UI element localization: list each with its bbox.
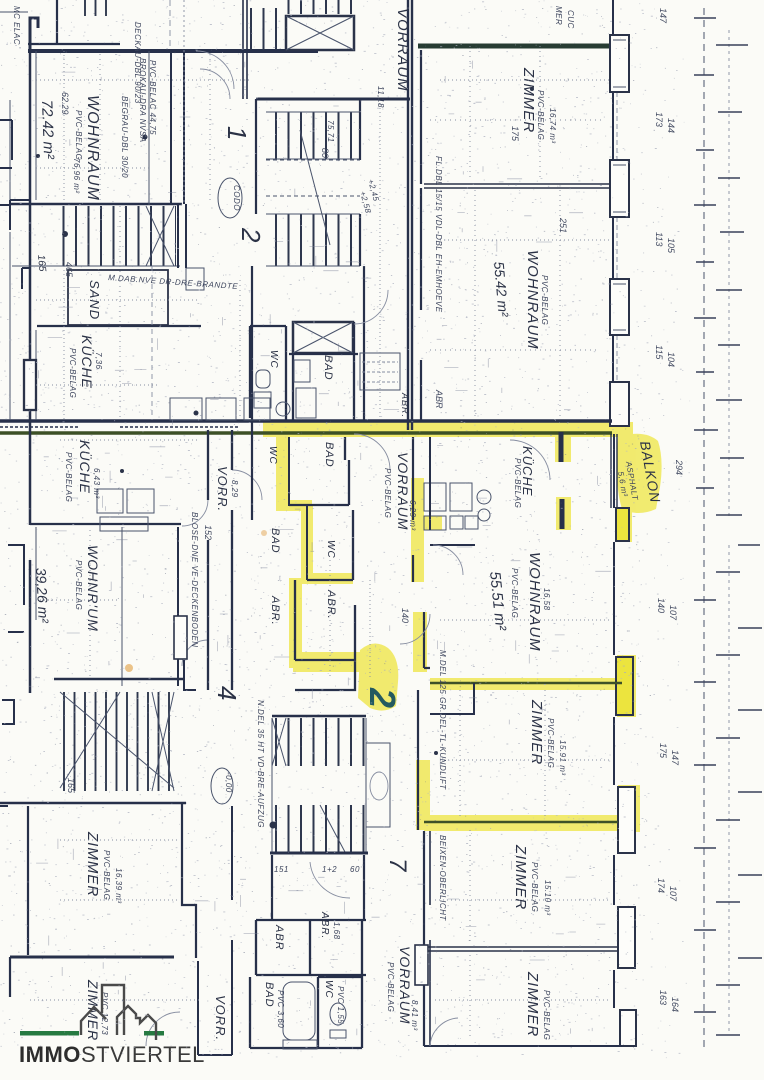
svg-text:140: 140	[400, 608, 410, 623]
svg-text:DECKAU-DBL 90/23: DECKAU-DBL 90/23	[133, 22, 142, 104]
svg-text:BAD: BAD	[323, 442, 335, 468]
svg-text:147: 147	[658, 8, 668, 24]
svg-text:PVC-BELAG: PVC-BELAG	[542, 990, 551, 1040]
svg-text:147: 147	[670, 750, 680, 766]
svg-text:MC ELAC: MC ELAC	[12, 6, 21, 45]
svg-text:465: 465	[64, 262, 74, 278]
svg-text:6,29 m³: 6,29 m³	[408, 500, 417, 531]
svg-text:IMMO: IMMO	[19, 1042, 81, 1067]
svg-text:M.DEL 125 GR.DEL-TL-KUNDLIFT: M.DEL 125 GR.DEL-TL-KUNDLIFT	[438, 650, 447, 790]
svg-text:151: 151	[274, 865, 289, 874]
svg-text:VORR.: VORR.	[213, 995, 228, 1041]
svg-text:SAND: SAND	[87, 280, 102, 320]
svg-text:165: 165	[66, 778, 76, 794]
svg-text:ABR.: ABR.	[269, 595, 281, 626]
svg-text:ZIMMER: ZIMMER	[524, 971, 541, 1037]
svg-text:WOHNRAUM: WOHNRAUM	[524, 250, 541, 350]
svg-text:175: 175	[658, 743, 668, 759]
svg-text:16,39 m³: 16,39 m³	[114, 868, 123, 904]
svg-text:62.29: 62.29	[60, 92, 70, 115]
svg-text:107: 107	[668, 605, 678, 621]
svg-text:BAD: BAD	[263, 982, 275, 1008]
svg-text:175: 175	[510, 126, 520, 142]
svg-text:PVC-BELAG: PVC-BELAG	[510, 568, 519, 618]
svg-text:PVC-BELAG: PVC-BELAG	[513, 458, 522, 508]
svg-text:ABR.: ABR.	[325, 589, 337, 620]
svg-text:8,29: 8,29	[230, 480, 239, 498]
svg-text:72.42 m²: 72.42 m²	[38, 100, 57, 161]
svg-text:WC: WC	[323, 980, 334, 999]
svg-text:ABR: ABR	[273, 924, 285, 951]
svg-text:2: 2	[362, 687, 403, 708]
svg-text:60: 60	[350, 865, 360, 874]
svg-text:CODO: CODO	[232, 185, 241, 211]
svg-text:FL.DBL 15/15 VDL-DBL EH-EMHOEV: FL.DBL 15/15 VDL-DBL EH-EMHOEVE	[434, 156, 443, 313]
svg-text:PVC-BELAG: PVC-BELAG	[74, 560, 83, 610]
svg-text:165: 165	[35, 254, 47, 272]
svg-text:152: 152	[203, 525, 213, 540]
svg-text:PVC-BELAG: PVC-BELAG	[536, 90, 545, 140]
svg-text:WC: WC	[267, 446, 278, 465]
svg-text:144: 144	[666, 118, 676, 133]
svg-text:2: 2	[236, 227, 266, 243]
svg-text:11,18: 11,18	[376, 86, 385, 108]
svg-text:BAD: BAD	[269, 528, 281, 554]
svg-text:-0,00: -0,00	[224, 772, 233, 793]
svg-text:ZIMMER: ZIMMER	[512, 844, 529, 910]
svg-text:PVC-BELAG: PVC-BELAG	[383, 468, 392, 518]
svg-text:MER: MER	[554, 6, 563, 25]
svg-text:BAD: BAD	[322, 355, 334, 381]
svg-text:174: 174	[656, 878, 666, 893]
svg-text:1: 1	[222, 126, 252, 140]
svg-text:WC: WC	[268, 350, 279, 369]
svg-text:PVC-BELAG: PVC-BELAG	[68, 348, 77, 398]
svg-text:PVC-BELAG: PVC-BELAG	[530, 862, 539, 912]
svg-text:76,96 m²: 76,96 m²	[72, 158, 81, 194]
svg-text:PVC-BELAG: PVC-BELAG	[74, 110, 83, 160]
svg-text:WC: WC	[325, 540, 336, 559]
svg-text:N.DEL 35 HT VD-BRE-AUFZUG: N.DEL 35 HT VD-BRE-AUFZUG	[256, 700, 265, 828]
svg-text:140: 140	[656, 598, 666, 613]
svg-text:BEGRAU-DBL 30/20: BEGRAU-DBL 30/20	[120, 96, 129, 178]
svg-text:PVC-BELAG: PVC-BELAG	[64, 452, 73, 502]
svg-text:WOHNRAUM: WOHNRAUM	[526, 552, 543, 652]
svg-text:75,71: 75,71	[326, 120, 335, 143]
svg-text:PVC 3,60: PVC 3,60	[276, 990, 285, 1028]
svg-text:PVC-BELAG: PVC-BELAG	[386, 962, 395, 1012]
svg-text:115: 115	[654, 345, 664, 360]
svg-text:173: 173	[654, 112, 664, 127]
svg-text:WOHNRAUM: WOHNRAUM	[84, 95, 101, 201]
svg-text:16,74 m³: 16,74 m³	[548, 108, 557, 144]
svg-text:80: 80	[320, 148, 330, 158]
svg-text:ZIMMER: ZIMMER	[520, 67, 537, 133]
svg-text:BEIXEN-OBERLICHT: BEIXEN-OBERLICHT	[438, 835, 447, 921]
svg-text:113: 113	[654, 232, 664, 246]
svg-text:ABR.: ABR.	[319, 911, 330, 939]
svg-text:251: 251	[558, 217, 568, 233]
svg-text:7: 7	[384, 858, 411, 873]
svg-text:15.91 m³: 15.91 m³	[558, 740, 567, 776]
svg-text:7,36: 7,36	[94, 352, 103, 370]
svg-text:16,58: 16,58	[542, 588, 551, 611]
svg-text:VORRAUM: VORRAUM	[394, 8, 411, 92]
svg-text:ZIMMER: ZIMMER	[84, 831, 101, 897]
svg-text:PVC-BELAG: PVC-BELAG	[540, 275, 549, 325]
svg-text:PVC 1,55: PVC 1,55	[336, 986, 345, 1024]
svg-text:PVC-BELAG: PVC-BELAG	[102, 850, 111, 900]
svg-text:104: 104	[666, 352, 676, 367]
svg-text:WOHNR'UM: WOHNR'UM	[85, 545, 101, 632]
svg-text:KÜCHE: KÜCHE	[79, 335, 96, 389]
svg-text:39,26 m²: 39,26 m²	[33, 567, 52, 624]
svg-text:CUC: CUC	[566, 10, 575, 29]
svg-text:6,43 m³: 6,43 m³	[92, 468, 101, 499]
svg-text:107: 107	[668, 886, 678, 902]
svg-text:BLOSE-DNE VE-DECKENBODEN: BLOSE-DNE VE-DECKENBODEN	[190, 512, 199, 648]
svg-text:STVIERTEL: STVIERTEL	[81, 1042, 205, 1067]
svg-text:164: 164	[670, 997, 680, 1012]
svg-text:1+2: 1+2	[322, 865, 337, 874]
svg-text:163: 163	[658, 990, 668, 1005]
svg-text:105: 105	[666, 238, 676, 254]
svg-text:294: 294	[674, 459, 684, 475]
svg-text:1,68: 1,68	[332, 922, 341, 940]
svg-text:PVC-BELAG: PVC-BELAG	[546, 718, 555, 768]
